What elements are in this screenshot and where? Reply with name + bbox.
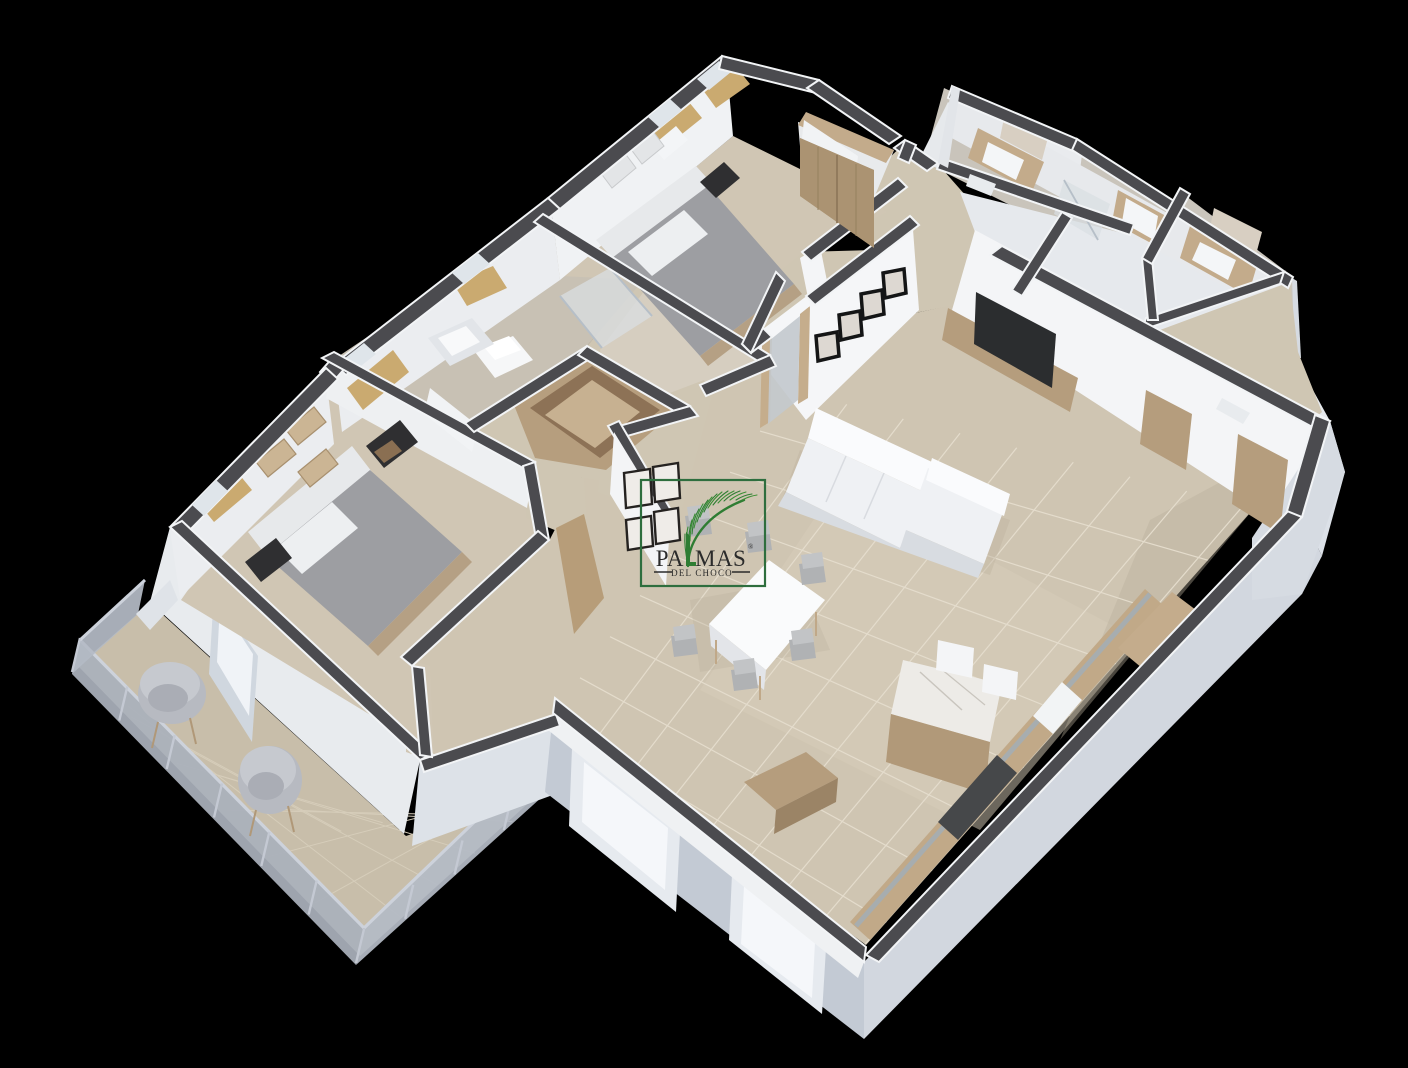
- svg-text:DEL CHOCO: DEL CHOCO: [671, 568, 733, 578]
- svg-text:®: ®: [748, 543, 754, 551]
